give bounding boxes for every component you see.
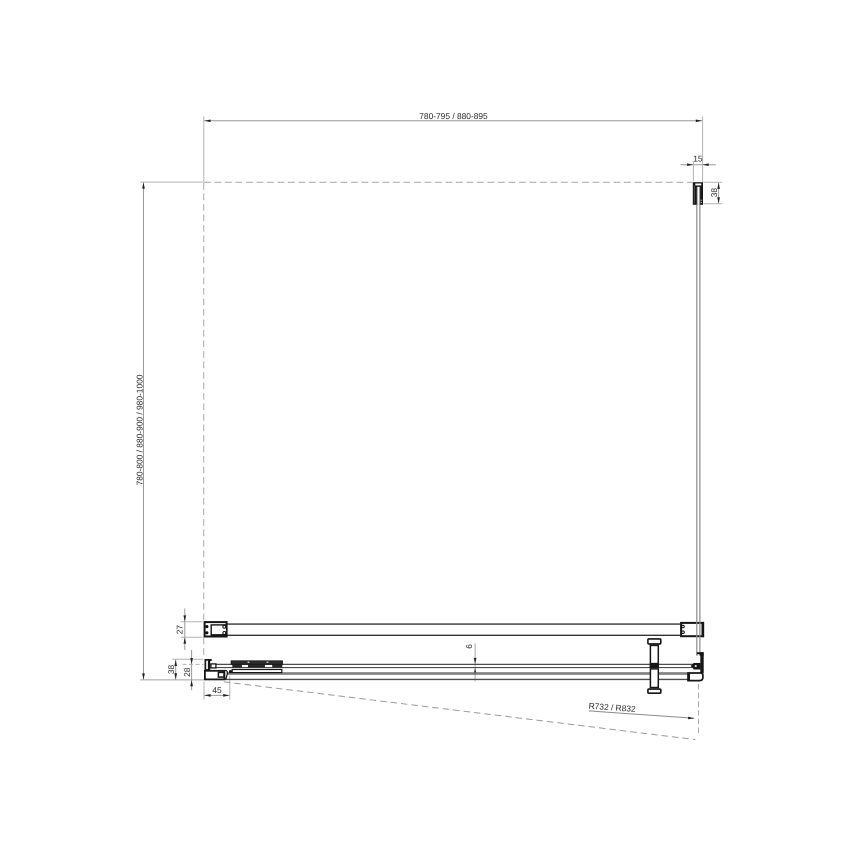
svg-text:780-800 / 880-900 / 980-1000: 780-800 / 880-900 / 980-1000 [134,374,144,485]
svg-text:45: 45 [212,685,222,695]
svg-text:6: 6 [464,644,474,649]
svg-text:780-795 / 880-895: 780-795 / 880-895 [419,111,488,121]
svg-text:27: 27 [175,625,185,635]
svg-text:R732 / R832: R732 / R832 [588,701,636,714]
svg-text:15: 15 [693,154,703,164]
svg-text:38: 38 [709,188,719,198]
svg-text:28: 28 [182,667,192,677]
svg-text:38: 38 [166,665,176,675]
